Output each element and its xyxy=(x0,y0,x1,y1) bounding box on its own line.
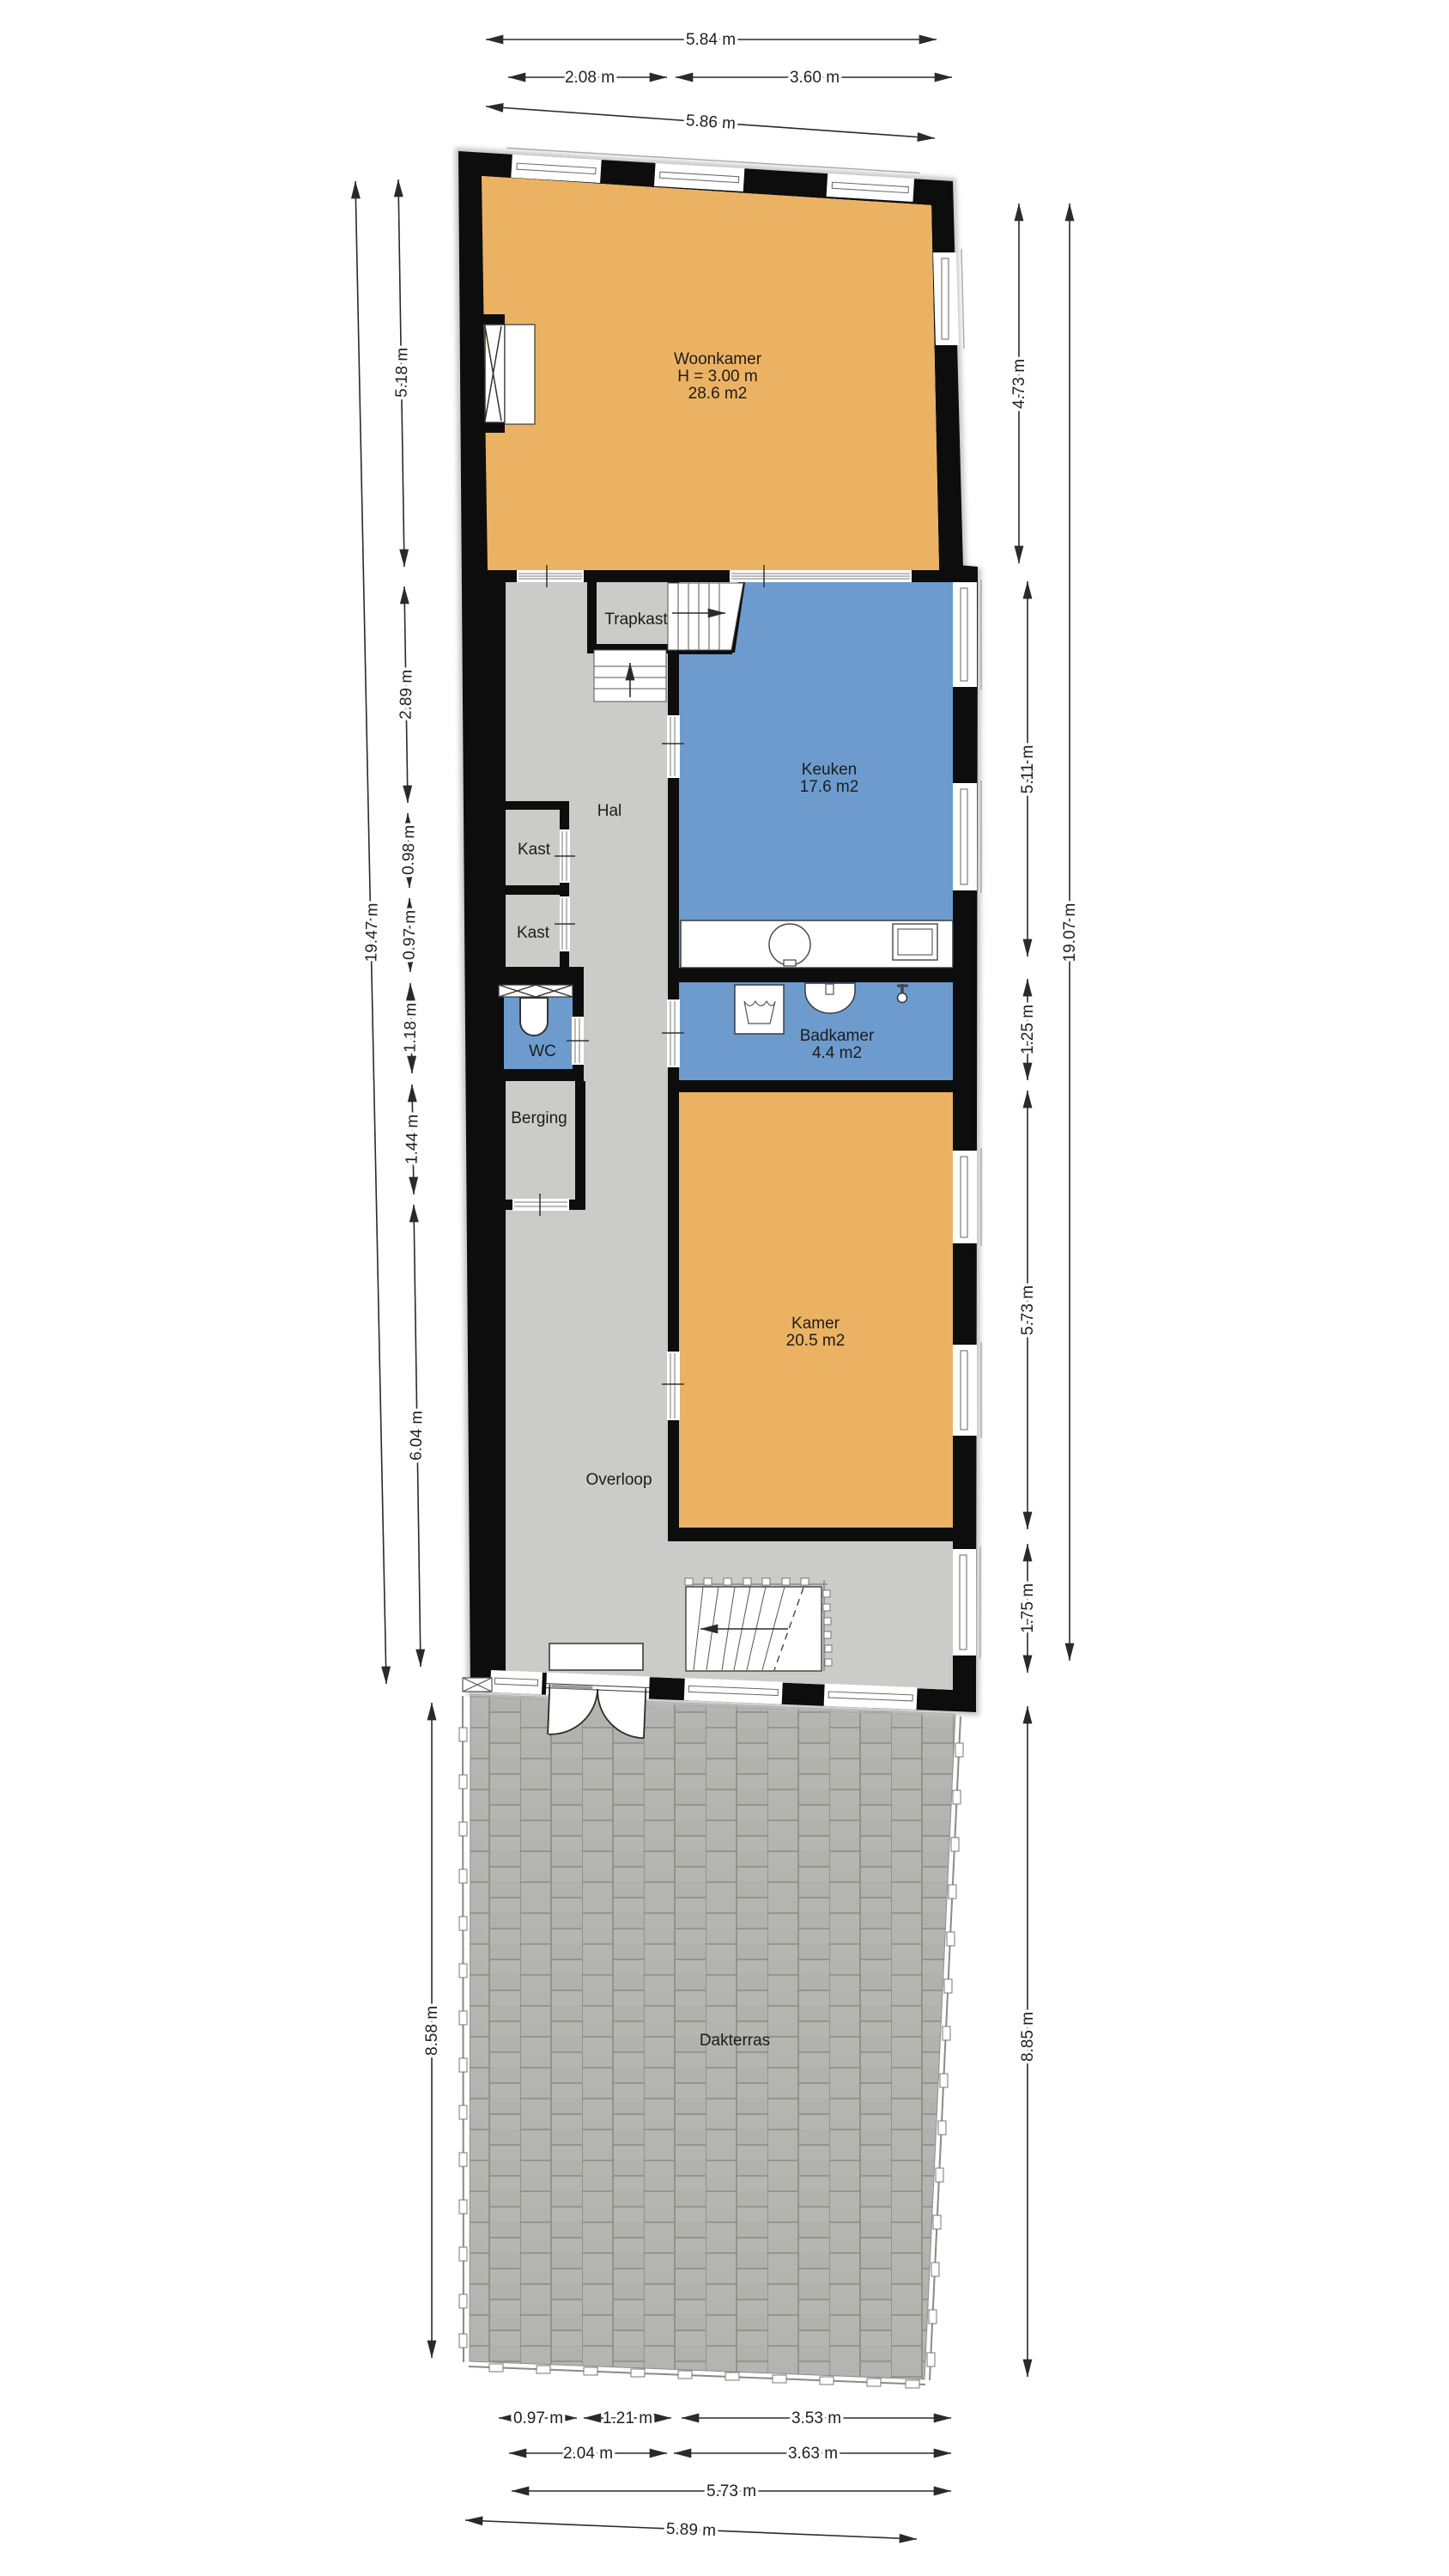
svg-text:Hal: Hal xyxy=(597,802,622,820)
svg-text:1.75 m: 1.75 m xyxy=(1019,1583,1037,1633)
svg-text:Kamer: Kamer xyxy=(791,1315,840,1333)
svg-text:0.97 m: 0.97 m xyxy=(513,2409,563,2427)
svg-text:17.6 m2: 17.6 m2 xyxy=(800,778,859,796)
svg-text:3.53 m: 3.53 m xyxy=(791,2409,841,2427)
svg-text:Overloop: Overloop xyxy=(585,1471,652,1489)
svg-text:6.04 m: 6.04 m xyxy=(407,1411,426,1461)
svg-text:5.11 m: 5.11 m xyxy=(1019,745,1037,794)
svg-text:19.07 m: 19.07 m xyxy=(1061,903,1079,963)
svg-text:Trapkast: Trapkast xyxy=(604,611,668,629)
svg-text:1.44 m: 1.44 m xyxy=(403,1115,421,1164)
svg-text:5.73 m: 5.73 m xyxy=(1019,1285,1037,1335)
svg-text:Badkamer: Badkamer xyxy=(800,1027,875,1045)
svg-text:5.89 m: 5.89 m xyxy=(666,2520,717,2540)
svg-text:8.85 m: 8.85 m xyxy=(1019,2012,1037,2062)
svg-text:1.18 m: 1.18 m xyxy=(401,1003,420,1053)
svg-text:Berging: Berging xyxy=(511,1109,567,1127)
svg-text:0.98 m: 0.98 m xyxy=(399,825,418,875)
svg-text:3.60 m: 3.60 m xyxy=(790,69,840,87)
svg-text:5.18 m: 5.18 m xyxy=(392,348,411,398)
svg-text:2.08 m: 2.08 m xyxy=(565,69,615,87)
svg-text:4.4 m2: 4.4 m2 xyxy=(812,1044,862,1062)
svg-text:1.25 m: 1.25 m xyxy=(1019,1005,1037,1054)
svg-text:2.04 m: 2.04 m xyxy=(563,2445,613,2463)
svg-text:28.6 m2: 28.6 m2 xyxy=(688,385,748,403)
svg-text:3.63 m: 3.63 m xyxy=(788,2445,838,2463)
svg-text:H = 3.00 m: H = 3.00 m xyxy=(677,368,757,386)
svg-text:4.73 m: 4.73 m xyxy=(1010,359,1028,409)
svg-text:19.47 m: 19.47 m xyxy=(362,902,381,962)
svg-text:Kast: Kast xyxy=(518,841,551,859)
svg-text:5.84 m: 5.84 m xyxy=(686,31,736,49)
svg-text:5.86 m: 5.86 m xyxy=(685,112,736,133)
svg-text:Keuken: Keuken xyxy=(802,761,857,779)
svg-text:Woonkamer: Woonkamer xyxy=(674,350,762,368)
svg-text:2.89 m: 2.89 m xyxy=(397,670,415,720)
svg-text:1.21 m: 1.21 m xyxy=(603,2409,652,2427)
svg-text:Kast: Kast xyxy=(517,924,550,942)
svg-text:Dakterras: Dakterras xyxy=(700,2032,770,2050)
svg-text:20.5 m2: 20.5 m2 xyxy=(786,1332,846,1350)
svg-text:0.97 m: 0.97 m xyxy=(400,910,419,960)
svg-text:WC: WC xyxy=(529,1042,556,1060)
svg-text:5.73 m: 5.73 m xyxy=(706,2482,756,2500)
svg-text:8.58 m: 8.58 m xyxy=(423,2006,441,2056)
